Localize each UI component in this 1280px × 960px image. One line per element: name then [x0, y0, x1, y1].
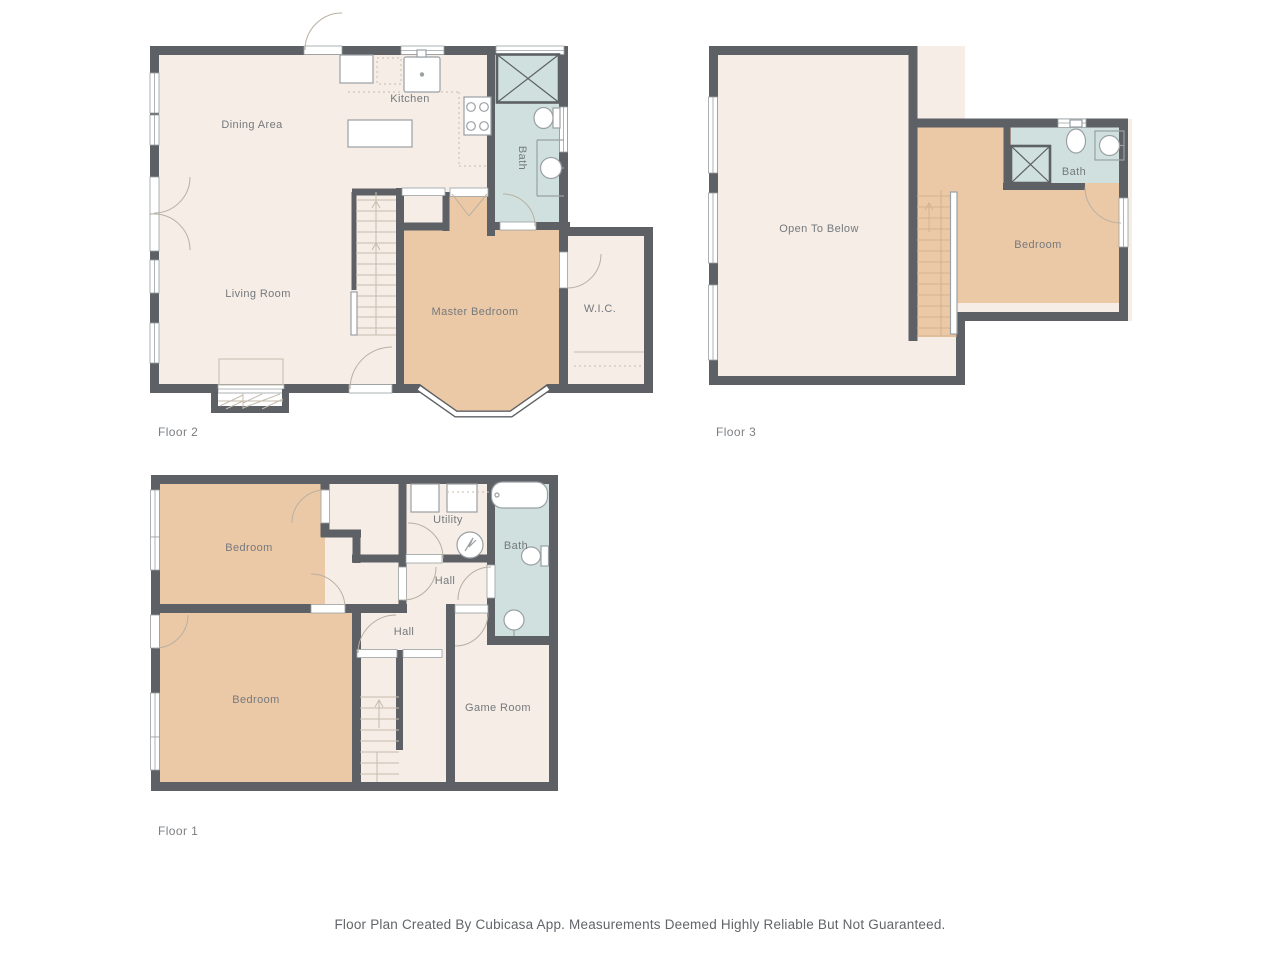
stair-railing: [351, 292, 357, 335]
floor-plan-canvas: Dining Area Kitchen Living Room Master B…: [0, 0, 1280, 960]
window: [709, 193, 718, 263]
window: [151, 737, 160, 770]
dryer: [447, 484, 477, 512]
room-label-bedroom-top: Bedroom: [225, 542, 272, 554]
room-label-wic: W.I.C.: [584, 303, 616, 315]
floor-3-label: Floor 3: [716, 425, 756, 439]
room-label-dining-area: Dining Area: [221, 119, 283, 131]
room-label-hall-lower: Hall: [394, 626, 415, 638]
floor-2: Dining Area Kitchen Living Room Master B…: [150, 13, 653, 414]
room-label-living-room: Living Room: [225, 288, 291, 300]
room-label-game-room: Game Room: [465, 702, 531, 714]
room-label-bedroom-bottom: Bedroom: [232, 694, 279, 706]
water-heater: [457, 532, 483, 558]
window: [560, 107, 568, 152]
room-label-master-bedroom: Master Bedroom: [432, 306, 519, 318]
window: [218, 385, 284, 394]
kitchen-island: [348, 120, 412, 147]
window: [151, 490, 160, 537]
stair-railing: [951, 192, 958, 334]
room-label-bedroom-f3: Bedroom: [1014, 239, 1061, 251]
room-label-kitchen: Kitchen: [390, 93, 430, 105]
room-label-bath-f1: Bath: [504, 540, 528, 552]
kitchen-cabinet: [340, 55, 373, 83]
window: [709, 97, 718, 173]
floor-3-rooms: [709, 46, 1132, 385]
room-label-bath-f3: Bath: [1062, 166, 1086, 178]
toilet: [534, 108, 560, 129]
disclaimer-text: Floor Plan Created By Cubicasa App. Meas…: [0, 917, 1280, 932]
floor-1-label: Floor 1: [158, 824, 198, 838]
window: [709, 285, 718, 360]
closet-sliding-door: [402, 188, 445, 196]
bathtub: [492, 482, 548, 508]
floor-1: Bedroom Bedroom Utility Hall Hall Bath G…: [151, 475, 559, 791]
stove: [464, 97, 491, 135]
hall-threshold: [403, 650, 442, 658]
floor-2-bay-window: [419, 384, 548, 414]
room-label-hall-upper: Hall: [435, 575, 456, 587]
floor-3: Open To Below Bedroom Bath: [709, 46, 1133, 385]
window: [150, 115, 159, 145]
floor2-bath-area: [491, 50, 564, 226]
room-label-bath-f2: Bath: [516, 146, 528, 170]
exterior-door: [304, 13, 342, 55]
room-label-utility: Utility: [433, 514, 463, 526]
floor-2-label: Floor 2: [158, 425, 198, 439]
window: [151, 693, 160, 737]
room-label-open-to-below: Open To Below: [779, 223, 859, 235]
window: [150, 260, 159, 293]
window: [150, 73, 159, 113]
window: [150, 323, 159, 363]
washer: [411, 484, 439, 512]
window: [151, 537, 160, 570]
